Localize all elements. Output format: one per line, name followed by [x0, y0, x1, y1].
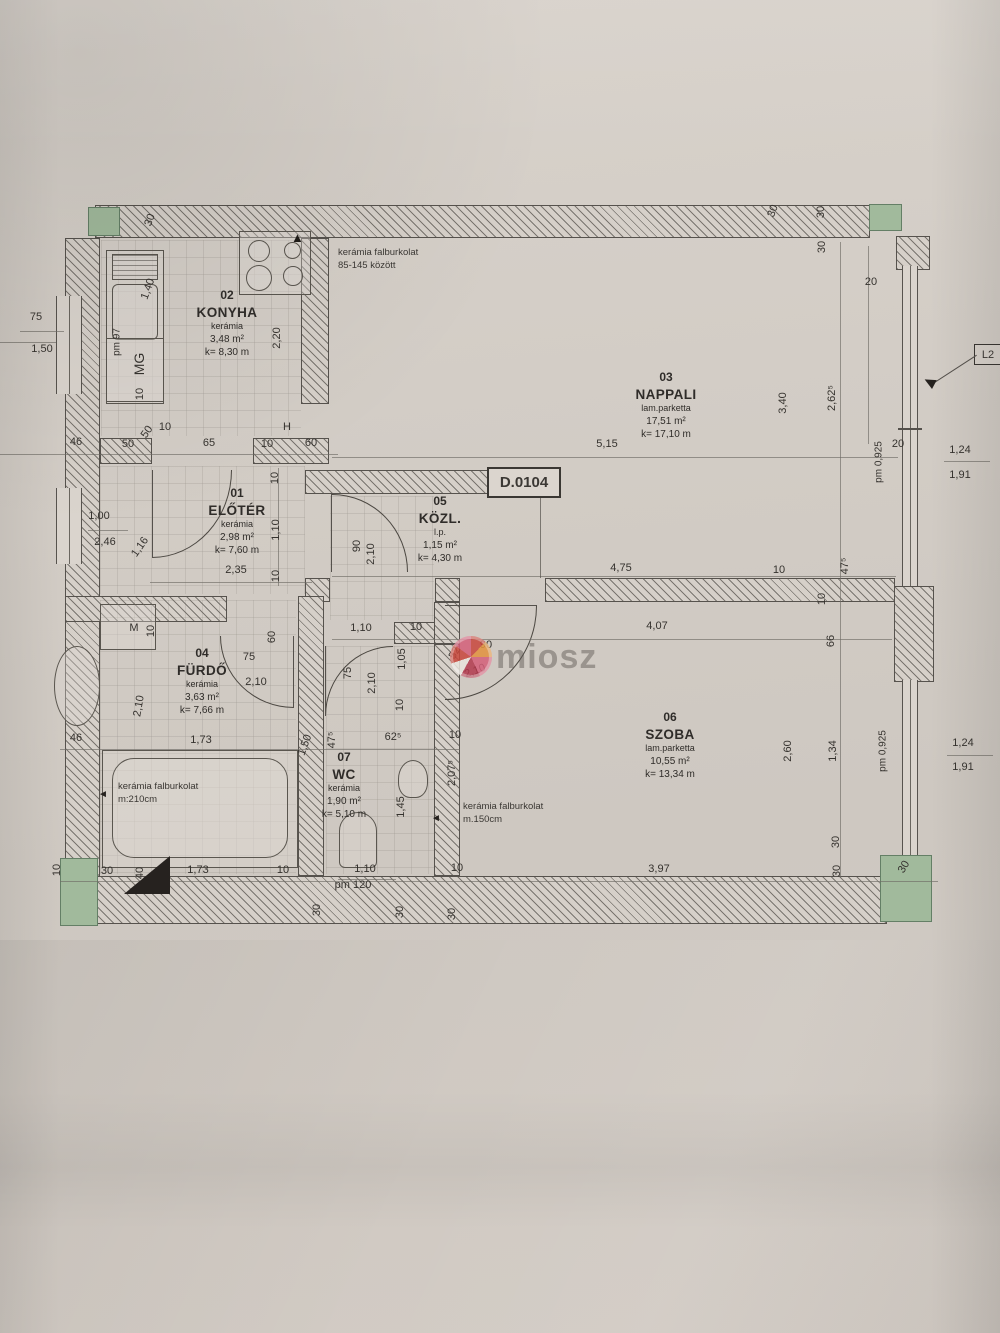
plan-number: D.0104: [500, 474, 548, 491]
fraction-line: [88, 530, 128, 531]
dimension-label: 30: [831, 865, 843, 877]
dimension-label: 5,15: [596, 438, 617, 450]
dimension-label: 2,10: [366, 672, 378, 693]
wall-segment: [435, 578, 460, 602]
fraction-line: [20, 331, 64, 332]
note-line: kerámia falburkolat: [118, 780, 198, 793]
room-num: 05: [418, 494, 462, 510]
dimension-label: 60: [305, 437, 317, 449]
room-nm: WC: [322, 766, 366, 784]
wall-segment: [95, 205, 870, 238]
callout-label: L2: [982, 349, 994, 361]
room-ar: 1,15 m²: [418, 539, 462, 552]
dimension-label: 20: [865, 276, 877, 288]
dimension-label: 1,10: [354, 863, 375, 875]
dimension-label: 10: [145, 625, 157, 637]
dimension-label: H: [283, 421, 291, 433]
dimension-line: [0, 454, 338, 455]
dimension-label: 10: [159, 421, 171, 433]
wc-basin-symbol: [398, 760, 428, 798]
dimension-label: 30: [101, 865, 113, 877]
finish-note: kerámia falburkolat85-145 között: [338, 246, 418, 273]
dimension-label: 1,34: [827, 740, 839, 761]
dimension-line: [60, 749, 460, 750]
note-arrowhead-icon: ◄: [431, 813, 441, 824]
dimension-label: pm 0,925: [878, 730, 889, 772]
dimension-line: [60, 881, 938, 882]
room-label-nappali: 03NAPPALIlam.parketta17,51 m²k= 17,10 m: [635, 370, 696, 441]
room-nm: SZOBA: [645, 726, 695, 744]
dimension-label: 10: [394, 699, 406, 711]
room-nm: KÖZL.: [418, 510, 462, 528]
window-mullion: [898, 428, 922, 430]
room-fin: kerámia: [322, 783, 366, 795]
note-line: m:210cm: [118, 793, 198, 806]
dimension-label: 2,62⁵: [826, 385, 838, 411]
window-symbol: [902, 266, 918, 586]
finish-note: kerámia falburkolatm.150cm: [463, 800, 543, 827]
dimension-label: 75: [243, 651, 255, 663]
room-kk: k= 7,66 m: [177, 704, 227, 717]
room-fin: lam.parketta: [635, 403, 696, 415]
column-marker: [60, 858, 98, 926]
room-kk: k= 13,34 m: [645, 768, 695, 781]
dimension-line: [150, 582, 312, 583]
room-fin: kerámia: [208, 519, 265, 531]
room-label-frd: 04FÜRDŐkerámia3,63 m²k= 7,66 m: [177, 646, 227, 717]
dimension-label: 1,50: [31, 343, 52, 355]
dimension-label: 1,73: [187, 864, 208, 876]
dimension-label: 62⁵: [385, 731, 402, 743]
dimension-label: 10: [51, 864, 63, 876]
dimension-label: 1,91: [952, 761, 973, 773]
room-nm: NAPPALI: [635, 386, 696, 404]
floorplan-photo: ▲ L2 ◄ ◄ D.0104 miosz 30751,50pm 97M: [0, 0, 1000, 1333]
dimension-label: 1,10: [350, 622, 371, 634]
dimension-label: 2,10: [245, 676, 266, 688]
dimension-label: 10: [449, 729, 461, 741]
dimension-label: 2,20: [271, 327, 283, 348]
dimension-label: 40: [134, 867, 146, 879]
door-arc: [325, 646, 393, 716]
room-label-kzl: 05KÖZL.l.p.1,15 m²k= 4,30 m: [418, 494, 462, 565]
dimension-label: 3,97: [648, 863, 669, 875]
wall-segment: [305, 470, 490, 494]
dimension-label: 47⁵: [839, 558, 851, 575]
dimension-label: 65: [203, 437, 215, 449]
note-line: kerámia falburkolat: [338, 246, 418, 259]
dimension-label: 30: [815, 206, 827, 218]
room-kk: k= 8,30 m: [197, 346, 258, 359]
dimension-label: pm 120: [335, 879, 372, 891]
note-line: m.150cm: [463, 813, 543, 826]
note-arrowhead-icon: ◄: [98, 789, 108, 800]
room-ar: 2,98 m²: [208, 531, 265, 544]
room-ar: 3,63 m²: [177, 691, 227, 704]
dimension-label: 1,24: [949, 444, 970, 456]
dimension-label: 2,10: [131, 694, 147, 717]
dimension-label: 10: [410, 621, 422, 633]
room-nm: KONYHA: [197, 304, 258, 322]
dimension-label: 60: [266, 631, 278, 643]
dimension-label: 2,60: [782, 740, 794, 761]
room-fin: l.p.: [418, 527, 462, 539]
room-num: 04: [177, 646, 227, 662]
room-ar: 17,51 m²: [635, 415, 696, 428]
dimension-label: pm 0,925: [874, 441, 885, 483]
dimension-label: 30: [311, 904, 323, 916]
dimension-label: 75: [342, 667, 354, 679]
stove-burner: [248, 240, 270, 262]
room-num: 01: [208, 486, 265, 502]
door-leaf: [152, 470, 153, 558]
callout-arrowhead-icon: [922, 375, 936, 389]
door-arc: [220, 636, 294, 708]
note-line: kerámia falburkolat: [463, 800, 543, 813]
finish-note: kerámia falburkolatm:210cm: [118, 780, 198, 807]
dimension-label: 1,24: [952, 737, 973, 749]
callout-box: L2: [974, 344, 1000, 365]
room-kk: k= 5,10 m: [322, 808, 366, 821]
dimension-label: 46: [70, 436, 82, 448]
dimension-label: 10: [270, 570, 282, 582]
dimension-label: 46: [70, 732, 82, 744]
dimension-line: [332, 457, 898, 458]
room-ar: 3,48 m²: [197, 333, 258, 346]
watermark-logo-icon: [450, 636, 492, 678]
washbasin-symbol: [54, 646, 100, 726]
dimension-label: 2,07⁵: [446, 760, 458, 786]
dimension-line: [332, 639, 892, 640]
dimension-label: 20: [892, 438, 904, 450]
dimension-label: 2,35: [225, 564, 246, 576]
dimension-label: 1,10: [270, 519, 282, 540]
door-leaf: [445, 605, 537, 606]
dimension-label: 30: [830, 836, 842, 848]
watermark: miosz: [450, 636, 597, 678]
room-ar: 1,90 m²: [322, 795, 366, 808]
room-kk: k= 17,10 m: [635, 428, 696, 441]
dimension-label: 47⁵: [326, 732, 338, 749]
dimension-label: 1,00: [88, 510, 109, 522]
room-ar: 10,55 m²: [645, 755, 695, 768]
window-symbol: [902, 680, 918, 855]
dimension-label: 10: [261, 438, 273, 450]
dimension-label: 1,05: [396, 648, 408, 669]
room-fin: kerámia: [177, 679, 227, 691]
dimension-label: 3,40: [777, 392, 789, 413]
wall-segment: [95, 876, 887, 924]
door-leaf: [293, 636, 294, 708]
vent-arrow-icon: ▲: [291, 230, 304, 245]
room-label-szoba: 06SZOBAlam.parketta10,55 m²k= 13,34 m: [645, 710, 695, 781]
room-kk: k= 4,30 m: [418, 552, 462, 565]
watermark-text: miosz: [496, 638, 597, 677]
dimension-label: 75: [30, 311, 42, 323]
dimension-label: 4,75: [610, 562, 631, 574]
dimension-label: 50: [122, 438, 134, 450]
room-nm: ELŐTÉR: [208, 502, 265, 520]
window-symbol: [56, 488, 82, 564]
dimension-label: 2,46: [94, 536, 115, 548]
dimension-label: 10: [816, 593, 828, 605]
room-num: 07: [322, 750, 366, 766]
dimension-label: 1,16: [129, 535, 151, 559]
dimension-label: 4,07: [646, 620, 667, 632]
fraction-line: [944, 461, 990, 462]
room-label-wc: 07WCkerámia1,90 m²k= 5,10 m: [322, 750, 366, 821]
dimension-label: 1,91: [949, 469, 970, 481]
dimension-label: pm 97: [112, 328, 123, 356]
room-num: 03: [635, 370, 696, 386]
wall-segment: [545, 578, 895, 602]
dimension-label: 10: [269, 472, 281, 484]
room-num: 02: [197, 288, 258, 304]
dimension-label: M: [129, 622, 138, 634]
wall-segment: [896, 236, 930, 270]
dimension-label: 30: [446, 908, 458, 920]
window-symbol: [56, 296, 82, 394]
wall-segment: [894, 586, 934, 682]
room-fin: kerámia: [197, 321, 258, 333]
dimension-label: 10: [277, 864, 289, 876]
callout-leader-line: [933, 355, 977, 384]
room-label-konyha: 02KONYHAkerámia3,48 m²k= 8,30 m: [197, 288, 258, 359]
dimension-label: 66: [825, 635, 837, 647]
room-boundary-line: [540, 494, 541, 578]
dimension-label: 30: [816, 241, 828, 253]
room-num: 06: [645, 710, 695, 726]
sink-drainer: [112, 254, 158, 280]
dimension-label: MG: [131, 353, 147, 376]
plan-number-badge: D.0104: [487, 467, 561, 498]
dimension-label: 10: [451, 862, 463, 874]
dimension-label: 90: [351, 540, 363, 552]
dimension-label: 1,73: [190, 734, 211, 746]
dimension-line: [332, 576, 896, 577]
room-fin: lam.parketta: [645, 743, 695, 755]
dimension-label: 10: [134, 388, 146, 400]
column-marker: [88, 207, 120, 236]
room-label-eltr: 01ELŐTÉRkerámia2,98 m²k= 7,60 m: [208, 486, 265, 557]
door-leaf: [325, 646, 326, 716]
column-marker: [869, 204, 902, 231]
room-nm: FÜRDŐ: [177, 662, 227, 680]
note-line: 85-145 között: [338, 259, 418, 272]
dimension-label: 30: [394, 906, 406, 918]
dimension-label: 10: [773, 564, 785, 576]
dimension-label: 2,10: [365, 543, 377, 564]
stove-burner: [283, 266, 303, 286]
fraction-line: [947, 755, 993, 756]
door-leaf: [331, 494, 332, 572]
dimension-label: 1,45: [395, 796, 407, 817]
room-kk: k= 7,60 m: [208, 544, 265, 557]
bathtub-inner: [112, 758, 288, 858]
